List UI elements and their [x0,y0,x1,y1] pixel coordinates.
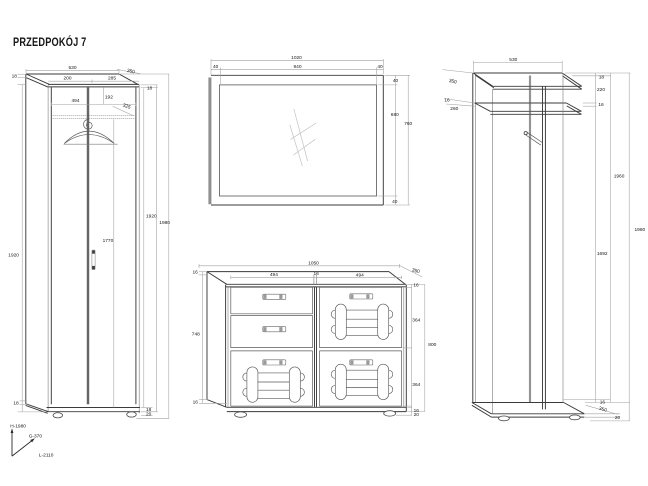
svg-text:18: 18 [147,85,153,91]
svg-text:18: 18 [13,400,19,406]
svg-text:1920: 1920 [146,213,157,219]
svg-text:1980: 1980 [159,220,170,226]
svg-text:364: 364 [412,318,420,324]
svg-text:760: 760 [404,121,412,127]
svg-text:40: 40 [393,78,399,84]
svg-text:16: 16 [598,102,604,108]
svg-text:1980: 1980 [635,227,646,233]
svg-text:18: 18 [12,73,18,79]
svg-text:494: 494 [71,98,79,104]
svg-text:1020: 1020 [291,55,302,61]
svg-text:1920: 1920 [8,253,19,259]
svg-text:192: 192 [105,94,113,100]
svg-text:1770: 1770 [103,238,114,244]
svg-text:16: 16 [193,269,199,275]
svg-text:20: 20 [615,415,621,421]
svg-text:16: 16 [413,282,419,288]
svg-text:1960: 1960 [614,173,625,179]
svg-text:1050: 1050 [308,260,319,266]
svg-text:364: 364 [412,382,420,388]
svg-text:530: 530 [509,57,517,63]
svg-text:40: 40 [392,199,398,205]
svg-text:1692: 1692 [597,251,608,257]
svg-text:285: 285 [108,76,116,82]
svg-text:40: 40 [213,64,219,70]
svg-text:940: 940 [293,64,301,70]
svg-text:16: 16 [193,400,199,406]
svg-text:494: 494 [356,272,364,278]
svg-text:200: 200 [63,76,71,82]
svg-text:260: 260 [450,106,458,112]
svg-text:18: 18 [599,74,605,80]
svg-text:20: 20 [414,412,420,418]
svg-text:800: 800 [428,342,436,348]
svg-text:16: 16 [600,399,606,405]
svg-text:16: 16 [444,98,450,104]
svg-text:220: 220 [597,87,605,93]
svg-text:530: 530 [68,65,76,71]
svg-text:16: 16 [314,271,320,277]
svg-text:L-2110: L-2110 [39,452,54,458]
svg-text:748: 748 [192,332,200,338]
svg-text:G-370: G-370 [29,434,43,440]
svg-text:20: 20 [146,412,152,418]
svg-text:H-1980: H-1980 [10,423,26,429]
svg-text:494: 494 [270,272,278,278]
svg-text:680: 680 [391,112,399,118]
svg-text:PRZEDPOKÓJ 7: PRZEDPOKÓJ 7 [13,36,87,49]
svg-text:40: 40 [377,64,383,70]
